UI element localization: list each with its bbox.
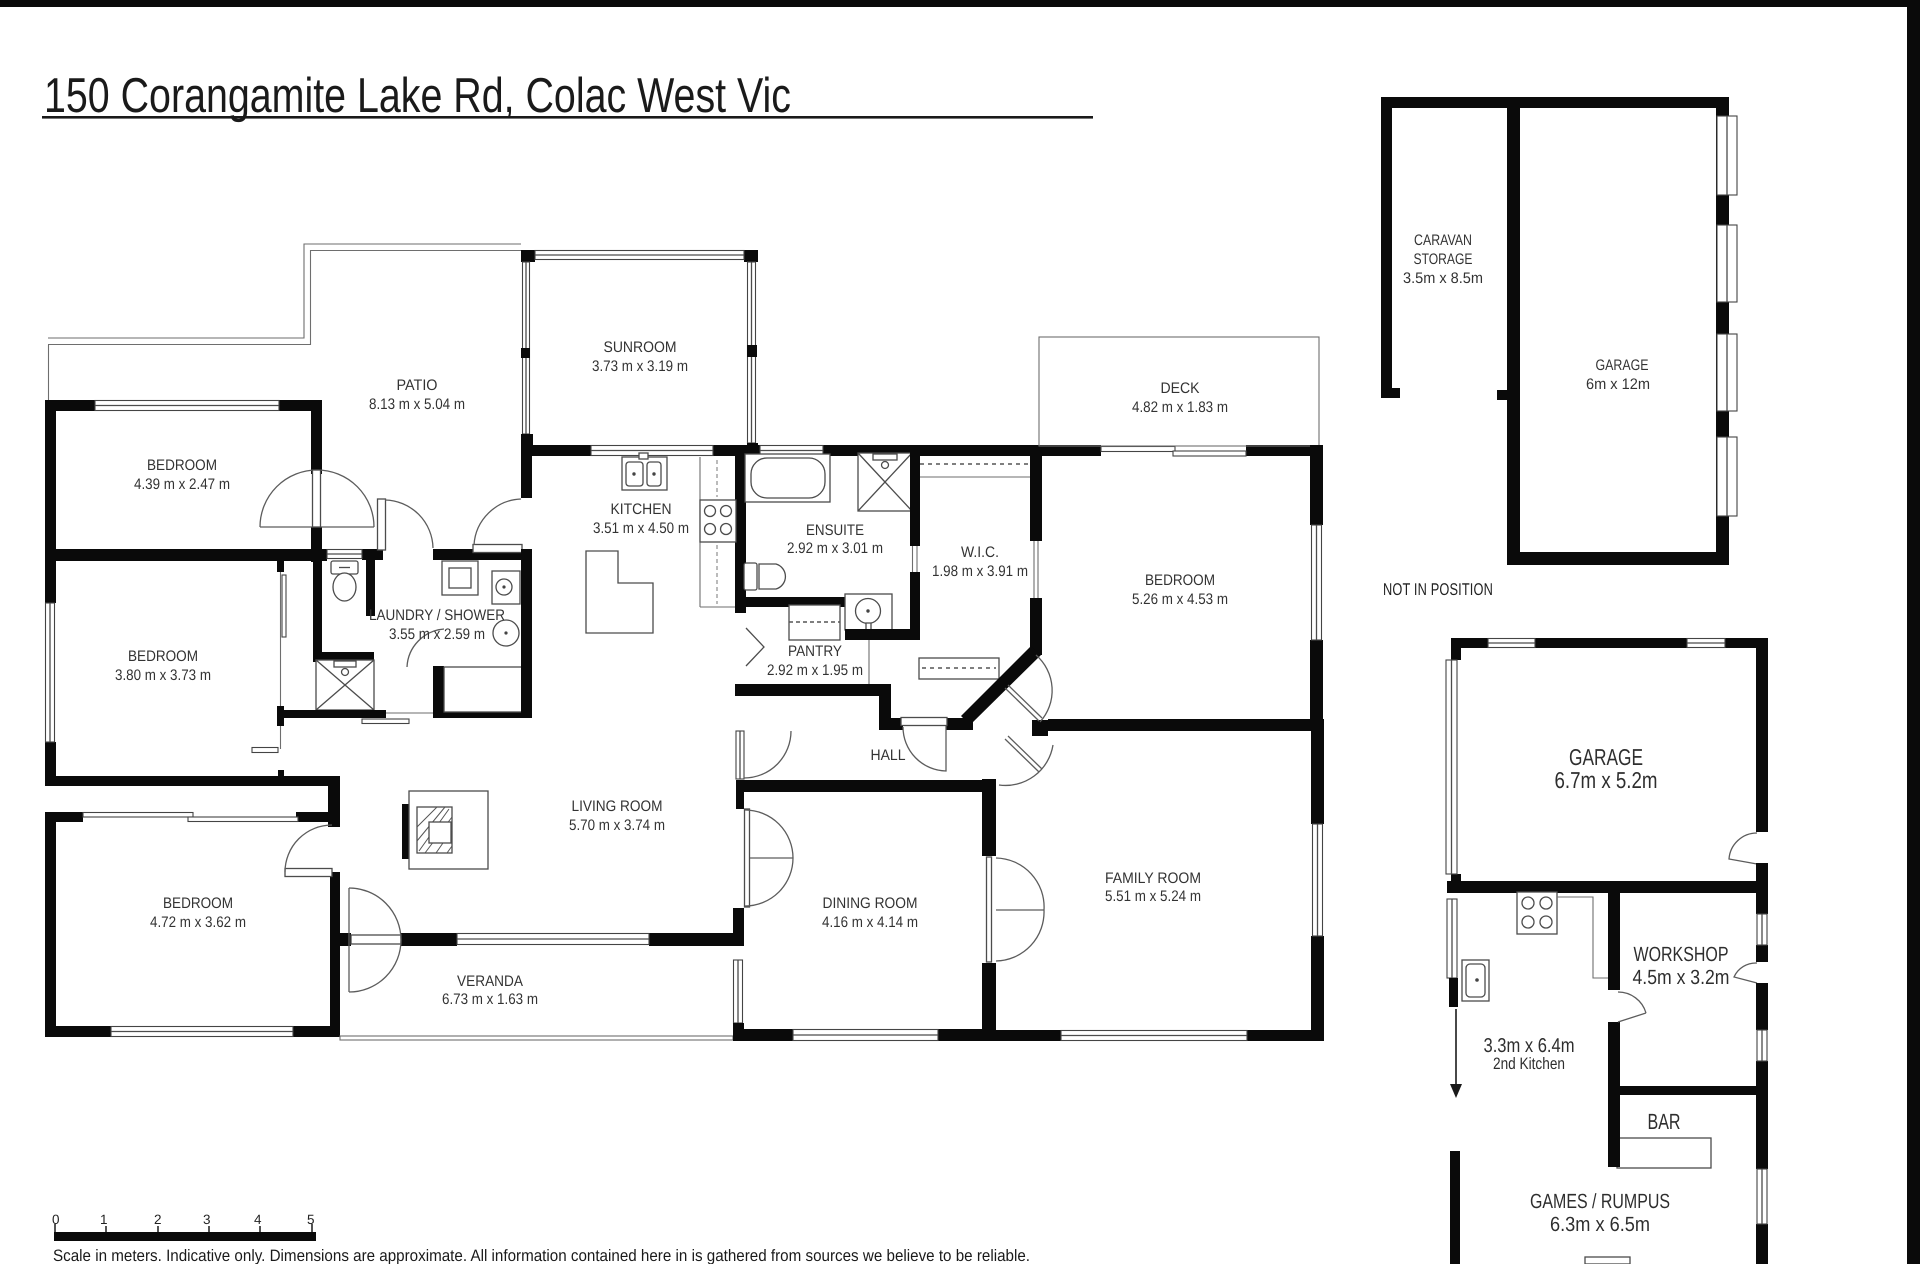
svg-text:DECK: DECK	[1161, 380, 1201, 397]
svg-text:LIVING ROOM: LIVING ROOM	[572, 798, 663, 815]
svg-text:6.7m x 5.2m: 6.7m x 5.2m	[1555, 767, 1658, 793]
svg-text:1.98 m x 3.91 m: 1.98 m x 3.91 m	[932, 563, 1028, 580]
svg-text:6.3m x 6.5m: 6.3m x 6.5m	[1550, 1213, 1650, 1236]
svg-text:SUNROOM: SUNROOM	[604, 339, 677, 356]
svg-text:CARAVAN: CARAVAN	[1414, 232, 1472, 249]
svg-text:ENSUITE: ENSUITE	[806, 522, 864, 539]
svg-text:3: 3	[203, 1212, 211, 1227]
svg-text:3.3m x 6.4m: 3.3m x 6.4m	[1484, 1035, 1575, 1057]
svg-text:4.72 m x 3.62 m: 4.72 m x 3.62 m	[150, 914, 246, 931]
svg-text:4: 4	[254, 1212, 262, 1227]
svg-text:0: 0	[52, 1212, 60, 1227]
svg-text:2.92 m x 1.95 m: 2.92 m x 1.95 m	[767, 662, 863, 679]
svg-text:WORKSHOP: WORKSHOP	[1634, 943, 1729, 966]
svg-text:4.16 m x 4.14 m: 4.16 m x 4.14 m	[822, 914, 918, 931]
svg-text:5.70 m x 3.74 m: 5.70 m x 3.74 m	[569, 817, 665, 834]
svg-text:BAR: BAR	[1648, 1109, 1681, 1134]
svg-text:3.73 m x 3.19 m: 3.73 m x 3.19 m	[592, 358, 688, 375]
svg-text:BEDROOM: BEDROOM	[147, 457, 217, 474]
svg-text:2: 2	[154, 1212, 162, 1227]
svg-text:3.55 m x 2.59 m: 3.55 m x 2.59 m	[389, 626, 485, 643]
svg-text:3.51 m x 4.50 m: 3.51 m x 4.50 m	[593, 520, 689, 537]
svg-text:NOT IN POSITION: NOT IN POSITION	[1383, 580, 1493, 599]
svg-text:Scale in meters. Indicative on: Scale in meters. Indicative only. Dimens…	[53, 1247, 1030, 1264]
svg-text:STORAGE: STORAGE	[1414, 251, 1473, 268]
svg-text:KITCHEN: KITCHEN	[611, 501, 672, 518]
svg-text:5.26 m x 4.53 m: 5.26 m x 4.53 m	[1132, 591, 1228, 608]
svg-text:4.82 m x 1.83 m: 4.82 m x 1.83 m	[1132, 399, 1228, 416]
svg-text:GAMES / RUMPUS: GAMES / RUMPUS	[1530, 1190, 1670, 1213]
svg-text:DINING ROOM: DINING ROOM	[823, 895, 918, 912]
svg-text:PATIO: PATIO	[397, 377, 438, 394]
svg-text:W.I.C.: W.I.C.	[961, 544, 999, 561]
svg-text:150 Corangamite Lake Rd, Colac: 150 Corangamite Lake Rd, Colac West Vic	[44, 69, 791, 123]
svg-text:5: 5	[307, 1212, 315, 1227]
svg-text:HALL: HALL	[871, 747, 906, 764]
svg-text:8.13 m x 5.04 m: 8.13 m x 5.04 m	[369, 396, 465, 413]
svg-text:1: 1	[100, 1212, 108, 1227]
svg-text:GARAGE: GARAGE	[1596, 357, 1649, 374]
svg-text:3.5m x 8.5m: 3.5m x 8.5m	[1403, 270, 1483, 287]
svg-text:LAUNDRY / SHOWER: LAUNDRY / SHOWER	[369, 607, 505, 624]
svg-text:6m x 12m: 6m x 12m	[1586, 376, 1650, 393]
svg-text:VERANDA: VERANDA	[457, 973, 524, 990]
svg-text:6.73 m x 1.63 m: 6.73 m x 1.63 m	[442, 991, 538, 1008]
svg-text:4.39 m x 2.47 m: 4.39 m x 2.47 m	[134, 476, 230, 493]
svg-text:2.92 m x 3.01 m: 2.92 m x 3.01 m	[787, 540, 883, 557]
svg-text:PANTRY: PANTRY	[788, 643, 842, 660]
svg-text:5.51 m x 5.24 m: 5.51 m x 5.24 m	[1105, 888, 1201, 905]
svg-text:2nd Kitchen: 2nd Kitchen	[1493, 1055, 1565, 1073]
svg-text:BEDROOM: BEDROOM	[128, 648, 198, 665]
svg-text:3.80 m x 3.73 m: 3.80 m x 3.73 m	[115, 667, 211, 684]
svg-text:BEDROOM: BEDROOM	[1145, 572, 1215, 589]
svg-text:4.5m x 3.2m: 4.5m x 3.2m	[1633, 966, 1730, 989]
svg-text:BEDROOM: BEDROOM	[163, 895, 233, 912]
svg-text:FAMILY ROOM: FAMILY ROOM	[1105, 870, 1201, 887]
